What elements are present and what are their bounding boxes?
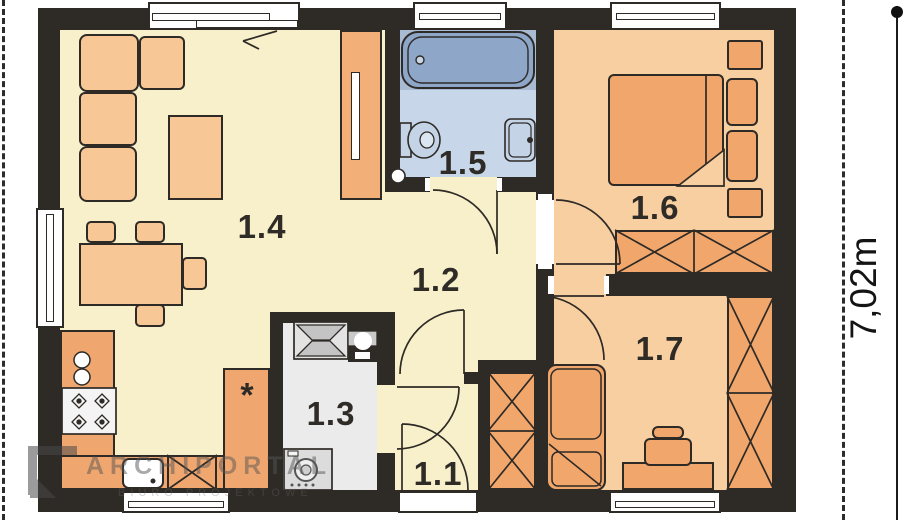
sofa-corner-cushion xyxy=(79,34,139,92)
wall-bath-bottom-left xyxy=(385,177,430,192)
wall-bedroom16-17 xyxy=(606,274,774,296)
window-pane xyxy=(419,13,501,20)
room-label-1-2: 1.2 xyxy=(412,261,461,299)
wall-bath-left xyxy=(385,8,400,192)
desk xyxy=(622,462,714,490)
door-jamb xyxy=(538,194,552,200)
sofa-cushion-top xyxy=(139,36,185,90)
wardrobe-bedroom17 xyxy=(727,296,774,490)
dining-table xyxy=(79,243,183,306)
tall-wardrobe-living xyxy=(340,30,382,200)
bathtub-zone xyxy=(400,30,536,90)
dimension-line-right xyxy=(896,6,898,520)
nightstand-1 xyxy=(727,40,763,70)
room-label-1-3: 1.3 xyxy=(307,395,356,433)
window-pane xyxy=(128,501,224,508)
dimension-dashed-line-left xyxy=(2,0,5,520)
sofa-cushion-left-1 xyxy=(79,92,137,146)
dining-chair-4 xyxy=(135,304,165,327)
chimney-block xyxy=(348,323,377,362)
wall-right xyxy=(774,8,796,512)
room-label-1-7: 1.7 xyxy=(636,330,685,368)
single-bed xyxy=(546,364,606,491)
hall-closet xyxy=(488,372,536,490)
door-jamb xyxy=(548,276,554,294)
dimension-marker-dot xyxy=(891,6,903,18)
watermark-subtitle: BIURO PROJEKTOWE xyxy=(118,487,313,499)
door-jamb xyxy=(425,178,430,191)
double-bed xyxy=(608,74,724,186)
desk-chair-seat xyxy=(644,438,692,466)
logo-arrow xyxy=(30,472,56,498)
dimension-height: 7,02m xyxy=(843,237,885,340)
dining-chair-2 xyxy=(135,221,165,243)
coffee-table xyxy=(168,115,223,200)
wall-vestibule-stub xyxy=(464,372,478,384)
fridge-symbol: * xyxy=(240,377,253,416)
floor-plan: * xyxy=(0,0,912,520)
wall-utility-right-lower xyxy=(377,453,395,490)
pillow-1 xyxy=(726,78,758,126)
archportal-logo-icon xyxy=(28,446,82,504)
wall-bath-bottom-right xyxy=(497,177,536,192)
wall-hall-bedroom16-upper xyxy=(536,8,554,200)
window-pane xyxy=(46,214,54,322)
door-jamb xyxy=(497,178,502,191)
sofa-cushion-left-2 xyxy=(79,146,137,202)
room-label-1-4: 1.4 xyxy=(238,208,287,246)
room-label-1-1: 1.1 xyxy=(414,455,463,493)
watermark-title: ARCHIPORTAL xyxy=(86,452,332,481)
door-jamb xyxy=(604,276,609,294)
wall-utility-right-upper xyxy=(377,312,395,385)
entrance-door xyxy=(398,491,478,513)
window-pane xyxy=(615,501,715,508)
window-pane xyxy=(616,13,715,20)
sliding-panel xyxy=(196,20,298,28)
wall-closet-top xyxy=(478,360,536,372)
wardrobe-handle xyxy=(351,72,360,160)
pillow-2 xyxy=(726,130,758,182)
room-label-1-5: 1.5 xyxy=(439,144,488,182)
wall-vestibule-right xyxy=(478,372,488,490)
room-label-1-6: 1.6 xyxy=(631,189,680,227)
nightstand-2 xyxy=(727,188,763,218)
wardrobe-bedroom16 xyxy=(615,230,774,274)
dining-chair-1 xyxy=(86,221,116,243)
dining-chair-3 xyxy=(182,257,207,290)
door-jamb xyxy=(538,264,552,269)
desk-chair-back xyxy=(652,426,684,439)
